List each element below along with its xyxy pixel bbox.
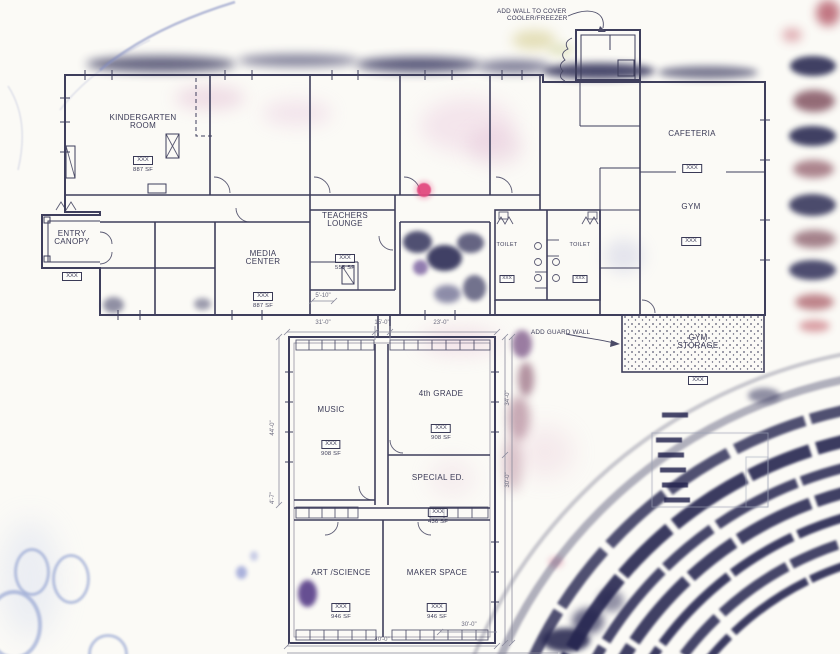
room-number: XXX bbox=[253, 292, 273, 301]
room-label-toilet-left: TOILET XXX bbox=[497, 242, 518, 284]
room-area: 887 SF bbox=[240, 303, 286, 310]
room-name: ART /SCIENCE bbox=[311, 569, 370, 577]
dimension-label: 5'-10" bbox=[315, 293, 330, 299]
room-area: 555 SF bbox=[316, 265, 374, 272]
room-area: 887 SF bbox=[103, 167, 183, 174]
room-number: XXX bbox=[133, 156, 153, 165]
room-name: TOILET bbox=[497, 242, 518, 248]
room-label-toilet-right: TOILET XXX bbox=[570, 242, 591, 284]
room-name: CAFETERIA bbox=[668, 130, 716, 138]
room-name: SPECIAL ED. bbox=[412, 474, 464, 482]
room-label-music: MUSIC XXX 908 SF bbox=[317, 406, 344, 458]
dimension-label: 40'-0" bbox=[374, 637, 389, 643]
room-label-entry-canopy: ENTRY CANOPY XXX bbox=[51, 230, 93, 282]
room-label-kindergarten: KINDERGARTEN ROOM XXX 887 SF bbox=[103, 114, 183, 174]
room-label-special-ed: SPECIAL ED. XXX 436 SF bbox=[412, 474, 464, 526]
room-name: MEDIA CENTER bbox=[240, 250, 286, 266]
room-name: 4th GRADE bbox=[419, 390, 464, 398]
annotation-line: COOLER/FREEZER bbox=[507, 15, 568, 22]
dimension-label: 34'-0" bbox=[505, 390, 511, 405]
dimension-label: 4'-7" bbox=[270, 492, 276, 504]
room-area: 908 SF bbox=[317, 451, 344, 458]
dimension-label: 23'-0" bbox=[433, 320, 448, 326]
room-label-media-center: MEDIA CENTER XXX 887 SF bbox=[240, 250, 286, 310]
room-number: XXX bbox=[331, 603, 351, 612]
room-area: 908 SF bbox=[419, 435, 464, 442]
room-label-maker-space: MAKER SPACE XXX 946 SF bbox=[407, 569, 468, 621]
room-name: GYM STORAGE bbox=[672, 334, 724, 350]
room-label-gym: GYM XXX bbox=[681, 203, 701, 247]
room-number: XXX bbox=[572, 275, 588, 283]
room-number: XXX bbox=[335, 254, 355, 263]
room-name: MUSIC bbox=[317, 406, 344, 414]
room-number: XXX bbox=[427, 603, 447, 612]
dimension-label: 30'-0" bbox=[505, 472, 511, 487]
room-area: 946 SF bbox=[311, 614, 370, 621]
dimension-label: 15'-0" bbox=[374, 320, 389, 326]
room-name: TEACHERS LOUNGE bbox=[316, 212, 374, 228]
room-number: XXX bbox=[431, 424, 451, 433]
room-number: XXX bbox=[681, 237, 701, 246]
annotation-line: ADD WALL TO COVER bbox=[497, 8, 568, 15]
dimension-label: 30'-0" bbox=[461, 622, 476, 628]
room-name: GYM bbox=[681, 203, 701, 211]
room-label-gym-storage: GYM STORAGE XXX bbox=[672, 334, 724, 386]
room-name: MAKER SPACE bbox=[407, 569, 468, 577]
room-number: XXX bbox=[682, 164, 702, 173]
upper-wing-walls bbox=[42, 30, 765, 372]
dimension-label: 44'-0" bbox=[270, 420, 276, 435]
cooler-box bbox=[576, 30, 640, 80]
room-number: XXX bbox=[499, 275, 515, 283]
room-label-fourth-grade: 4th GRADE XXX 908 SF bbox=[419, 390, 464, 442]
room-number: XXX bbox=[428, 508, 448, 517]
room-number: XXX bbox=[321, 440, 341, 449]
floor-plan-drawing bbox=[0, 0, 840, 654]
red-dot-marker bbox=[414, 180, 434, 200]
door-arcs bbox=[100, 177, 655, 535]
dimension-label: 31'-0" bbox=[315, 320, 330, 326]
room-name: ENTRY CANOPY bbox=[51, 230, 93, 246]
room-label-teachers-lounge: TEACHERS LOUNGE XXX 555 SF bbox=[316, 212, 374, 272]
room-label-art-science: ART /SCIENCE XXX 946 SF bbox=[311, 569, 370, 621]
leader-lines bbox=[560, 11, 620, 347]
room-area: 436 SF bbox=[412, 519, 464, 526]
room-name: TOILET bbox=[570, 242, 591, 248]
room-number: XXX bbox=[62, 272, 82, 281]
annotation-guard-wall-note: ADD GUARD WALL bbox=[531, 329, 590, 336]
room-label-cafeteria: CAFETERIA XXX bbox=[668, 130, 716, 174]
room-number: XXX bbox=[688, 376, 708, 385]
room-name: KINDERGARTEN ROOM bbox=[103, 114, 183, 130]
room-area: 946 SF bbox=[407, 614, 468, 621]
annotation-cooler-note: ADD WALL TO COVER COOLER/FREEZER bbox=[497, 8, 568, 22]
scanned-floor-plan: KINDERGARTEN ROOM XXX 887 SF CAFETERIA X… bbox=[0, 0, 840, 654]
